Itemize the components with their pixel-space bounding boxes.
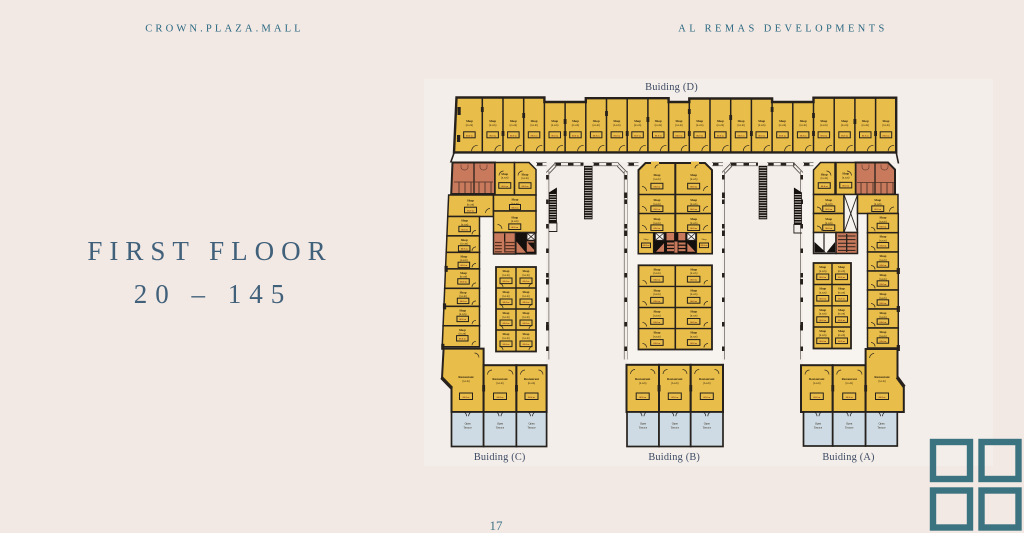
svg-text:(n.s.m): (n.s.m) <box>613 124 620 127</box>
svg-text:00.0 m: 00.0 m <box>690 208 697 211</box>
svg-text:00.0 m: 00.0 m <box>701 244 708 247</box>
svg-text:00.0 m: 00.0 m <box>503 301 510 304</box>
svg-text:Shop: Shop <box>523 311 530 315</box>
svg-text:Shop: Shop <box>690 331 697 335</box>
svg-text:00.0 m: 00.0 m <box>572 134 579 137</box>
svg-text:(n.s.m): (n.s.m) <box>671 382 678 385</box>
svg-text:(n.s.m): (n.s.m) <box>522 337 529 340</box>
svg-text:Open: Open <box>878 423 885 426</box>
svg-text:Shop: Shop <box>653 331 660 335</box>
svg-text:00.0 m: 00.0 m <box>489 134 496 137</box>
svg-text:Shop: Shop <box>717 119 724 123</box>
svg-text:Open: Open <box>528 423 535 426</box>
svg-text:(n.s.m): (n.s.m) <box>799 124 806 127</box>
svg-text:00.0 m: 00.0 m <box>841 134 848 137</box>
svg-text:00.0 m: 00.0 m <box>779 134 786 137</box>
svg-text:Shop: Shop <box>459 328 466 332</box>
svg-text:(n.s.m): (n.s.m) <box>639 382 646 385</box>
svg-text:00.0 m: 00.0 m <box>880 283 887 286</box>
svg-text:(n.s.m): (n.s.m) <box>696 124 703 127</box>
svg-text:Shop: Shop <box>696 119 703 123</box>
svg-text:00.0 m: 00.0 m <box>825 208 832 211</box>
svg-text:00.0 m: 00.0 m <box>696 134 703 137</box>
svg-text:Shop: Shop <box>874 198 881 202</box>
svg-text:CROWN.PLAZA.MALL: CROWN.PLAZA.MALL <box>145 24 303 35</box>
svg-text:00.0 m: 00.0 m <box>862 134 869 137</box>
svg-text:Shop: Shop <box>593 119 600 123</box>
svg-text:Shop: Shop <box>825 217 832 221</box>
svg-text:(n.s.m): (n.s.m) <box>675 124 682 127</box>
svg-text:(n.s.m): (n.s.m) <box>825 203 832 206</box>
svg-text:00.0 m: 00.0 m <box>819 276 826 279</box>
svg-text:(n.s.m): (n.s.m) <box>489 124 496 127</box>
svg-text:(n.s.m): (n.s.m) <box>690 293 697 296</box>
svg-text:Restaurant: Restaurant <box>809 377 825 381</box>
svg-text:(n.s.m): (n.s.m) <box>502 274 509 277</box>
svg-text:Shop: Shop <box>522 172 529 176</box>
svg-text:(n.s.m): (n.s.m) <box>653 314 660 317</box>
svg-text:Shop: Shop <box>690 267 697 271</box>
svg-text:(n.s.m): (n.s.m) <box>703 382 710 385</box>
svg-text:(n.s.m): (n.s.m) <box>551 124 558 127</box>
svg-text:00.0 m: 00.0 m <box>838 319 845 322</box>
svg-text:(n.s.m): (n.s.m) <box>838 334 845 337</box>
svg-text:(n.s.m): (n.s.m) <box>653 203 660 206</box>
svg-text:Shop: Shop <box>800 119 807 123</box>
svg-text:00.0 m: 00.0 m <box>690 300 697 303</box>
svg-text:Shop: Shop <box>572 119 579 123</box>
svg-text:Shop: Shop <box>489 119 496 123</box>
svg-text:(n.s.m): (n.s.m) <box>819 313 826 316</box>
svg-text:Terrace: Terrace <box>877 427 886 430</box>
svg-text:00.0 m: 00.0 m <box>512 206 519 209</box>
svg-text:(n.s.m): (n.s.m) <box>653 272 660 275</box>
svg-text:Shop: Shop <box>738 119 745 123</box>
svg-text:(n.s.m): (n.s.m) <box>690 178 697 181</box>
svg-text:Open: Open <box>815 423 822 426</box>
svg-text:(n.s.m): (n.s.m) <box>819 270 826 273</box>
svg-text:00.0 m: 00.0 m <box>846 396 853 399</box>
svg-text:Shop: Shop <box>461 238 468 242</box>
svg-text:(n.s.m): (n.s.m) <box>511 220 518 223</box>
svg-text:00.0 m: 00.0 m <box>523 280 530 283</box>
svg-text:00.0 m: 00.0 m <box>654 279 661 282</box>
svg-text:00.0 m: 00.0 m <box>551 134 558 137</box>
svg-text:Shop: Shop <box>820 119 827 123</box>
svg-text:Shop: Shop <box>879 254 886 258</box>
svg-text:00.0 m: 00.0 m <box>676 134 683 137</box>
svg-text:Terrace: Terrace <box>463 427 472 430</box>
svg-text:00.0 m: 00.0 m <box>758 134 765 137</box>
svg-text:Shop: Shop <box>779 119 786 123</box>
svg-text:(n.s.m): (n.s.m) <box>462 380 469 383</box>
svg-text:Terrace: Terrace <box>814 427 823 430</box>
svg-text:FIRST FLOOR: FIRST FLOOR <box>87 236 332 266</box>
svg-text:Shop: Shop <box>690 173 697 177</box>
svg-text:Shop: Shop <box>838 329 845 333</box>
svg-text:(n.s.m): (n.s.m) <box>502 295 509 298</box>
svg-text:00.0 m: 00.0 m <box>459 318 466 321</box>
svg-text:(n.s.m): (n.s.m) <box>737 124 744 127</box>
svg-text:Terrace: Terrace <box>639 427 648 430</box>
svg-text:00.0 m: 00.0 m <box>838 276 845 279</box>
svg-text:Shop: Shop <box>466 119 473 123</box>
svg-text:00.0 m: 00.0 m <box>874 208 881 211</box>
svg-text:(n.s.m): (n.s.m) <box>825 222 832 225</box>
svg-text:(n.s.m): (n.s.m) <box>466 124 473 127</box>
svg-text:(n.s.m): (n.s.m) <box>819 291 826 294</box>
svg-text:Shop: Shop <box>819 308 826 312</box>
svg-text:00.0 m: 00.0 m <box>528 396 535 399</box>
svg-text:Shop: Shop <box>862 119 869 123</box>
svg-text:(n.s.m): (n.s.m) <box>882 124 889 127</box>
svg-text:Shop: Shop <box>459 308 466 312</box>
svg-text:(n.s.m): (n.s.m) <box>502 316 509 319</box>
svg-text:(n.s.m): (n.s.m) <box>690 203 697 206</box>
svg-text:(n.s.m): (n.s.m) <box>717 124 724 127</box>
svg-text:00.0 m: 00.0 m <box>821 185 828 188</box>
svg-text:00.0 m: 00.0 m <box>838 298 845 301</box>
svg-text:Restaurant: Restaurant <box>524 377 540 381</box>
svg-text:00.0 m: 00.0 m <box>460 264 467 267</box>
svg-text:(n.s.m): (n.s.m) <box>820 124 827 127</box>
svg-text:Shop: Shop <box>838 265 845 269</box>
svg-text:Shop: Shop <box>634 119 641 123</box>
svg-text:(n.s.m): (n.s.m) <box>874 203 881 206</box>
svg-text:Shop: Shop <box>675 119 682 123</box>
svg-text:(n.s.m): (n.s.m) <box>522 274 529 277</box>
svg-text:(n.s.m): (n.s.m) <box>572 124 579 127</box>
svg-text:(n.s.m): (n.s.m) <box>690 222 697 225</box>
svg-text:00.0 m: 00.0 m <box>838 340 845 343</box>
svg-text:00.0 m: 00.0 m <box>503 343 510 346</box>
svg-text:Restaurant: Restaurant <box>842 377 858 381</box>
svg-text:Shop: Shop <box>879 311 886 315</box>
svg-text:(n.s.m): (n.s.m) <box>501 177 508 180</box>
svg-text:00.0 m: 00.0 m <box>634 134 641 137</box>
svg-text:00.0 m: 00.0 m <box>503 280 510 283</box>
svg-text:(n.s.m): (n.s.m) <box>878 380 885 383</box>
svg-text:Shop: Shop <box>690 310 697 314</box>
svg-text:(n.s.m): (n.s.m) <box>522 295 529 298</box>
svg-text:00.0 m: 00.0 m <box>463 396 470 399</box>
svg-text:00.0 m: 00.0 m <box>654 342 661 345</box>
svg-text:Shop: Shop <box>503 269 510 273</box>
svg-text:Shop: Shop <box>523 269 530 273</box>
svg-text:Shop: Shop <box>702 238 708 241</box>
svg-text:00.0 m: 00.0 m <box>654 208 661 211</box>
svg-text:Restaurant: Restaurant <box>492 377 508 381</box>
svg-text:00.0 m: 00.0 m <box>497 396 504 399</box>
svg-text:(n.s.m): (n.s.m) <box>592 124 599 127</box>
svg-text:Shop: Shop <box>467 198 474 202</box>
svg-text:Open: Open <box>704 423 711 426</box>
svg-text:00.0 m: 00.0 m <box>654 300 661 303</box>
svg-text:(n.s.m): (n.s.m) <box>528 382 535 385</box>
svg-text:Shop: Shop <box>512 198 519 202</box>
svg-text:Terrace: Terrace <box>671 427 680 430</box>
svg-text:Shop: Shop <box>879 330 886 334</box>
svg-text:Shop: Shop <box>819 265 826 269</box>
svg-text:00.0 m: 00.0 m <box>503 322 510 325</box>
svg-text:00.0 m: 00.0 m <box>813 396 820 399</box>
svg-text:00.0 m: 00.0 m <box>654 185 661 188</box>
svg-text:00.0 m: 00.0 m <box>639 396 646 399</box>
svg-text:(n.s.m): (n.s.m) <box>467 203 474 206</box>
svg-text:Open: Open <box>846 423 853 426</box>
svg-text:(n.s.m): (n.s.m) <box>690 335 697 338</box>
svg-text:Open: Open <box>497 423 504 426</box>
svg-text:Shop: Shop <box>501 172 508 176</box>
svg-text:Open: Open <box>465 423 472 426</box>
svg-text:00.0 m: 00.0 m <box>690 227 697 230</box>
svg-text:00.0 m: 00.0 m <box>501 185 508 188</box>
svg-text:00.0 m: 00.0 m <box>819 319 826 322</box>
svg-text:Shop: Shop <box>523 290 530 294</box>
svg-text:Shop: Shop <box>879 235 886 239</box>
svg-text:(n.s.m): (n.s.m) <box>690 314 697 317</box>
svg-text:20 – 145: 20 – 145 <box>134 279 293 309</box>
svg-text:(n.s.m): (n.s.m) <box>634 124 641 127</box>
svg-text:Shop: Shop <box>838 287 845 291</box>
svg-text:(n.s.m): (n.s.m) <box>862 124 869 127</box>
svg-text:00.0 m: 00.0 m <box>825 227 832 230</box>
svg-text:(n.s.m): (n.s.m) <box>510 124 517 127</box>
svg-text:00.0 m: 00.0 m <box>643 244 650 247</box>
svg-text:Shop: Shop <box>460 290 467 294</box>
svg-text:Shop: Shop <box>503 332 510 336</box>
svg-text:00.0 m: 00.0 m <box>880 302 887 305</box>
svg-text:(n.s.m): (n.s.m) <box>813 382 820 385</box>
svg-text:00.0 m: 00.0 m <box>690 185 697 188</box>
svg-text:00.0 m: 00.0 m <box>703 396 710 399</box>
svg-text:Shop: Shop <box>653 173 660 177</box>
svg-text:Restaurant: Restaurant <box>635 377 651 381</box>
svg-text:00.0 m: 00.0 m <box>690 321 697 324</box>
svg-text:(n.s.m): (n.s.m) <box>842 176 849 179</box>
svg-text:(n.s.m): (n.s.m) <box>838 270 845 273</box>
svg-text:00.0 m: 00.0 m <box>819 298 826 301</box>
svg-text:00.0 m: 00.0 m <box>842 185 849 188</box>
svg-text:00.0 m: 00.0 m <box>880 225 887 228</box>
svg-text:(n.s.m): (n.s.m) <box>521 177 528 180</box>
svg-text:00.0 m: 00.0 m <box>880 340 887 343</box>
svg-text:00.0 m: 00.0 m <box>523 301 530 304</box>
svg-text:00.0 m: 00.0 m <box>466 134 473 137</box>
svg-text:(n.s.m): (n.s.m) <box>838 313 845 316</box>
svg-text:Buiding (A): Buiding (A) <box>822 452 874 463</box>
svg-text:Shop: Shop <box>653 198 660 202</box>
svg-text:(n.s.m): (n.s.m) <box>653 335 660 338</box>
svg-text:(n.s.m): (n.s.m) <box>838 291 845 294</box>
svg-text:Shop: Shop <box>511 215 518 219</box>
svg-text:00.0 m: 00.0 m <box>820 134 827 137</box>
svg-text:00.0 m: 00.0 m <box>738 134 745 137</box>
svg-text:Shop: Shop <box>838 308 845 312</box>
svg-text:(n.s.m): (n.s.m) <box>779 124 786 127</box>
svg-text:00.0 m: 00.0 m <box>522 185 529 188</box>
svg-text:(n.s.m): (n.s.m) <box>821 177 828 180</box>
svg-text:00.0 m: 00.0 m <box>654 227 661 230</box>
svg-text:Shop: Shop <box>690 217 697 221</box>
svg-text:(n.s.m): (n.s.m) <box>653 222 660 225</box>
svg-text:(n.s.m): (n.s.m) <box>496 382 503 385</box>
svg-text:(n.s.m): (n.s.m) <box>819 334 826 337</box>
svg-text:00.0 m: 00.0 m <box>523 343 530 346</box>
svg-text:(n.s.m): (n.s.m) <box>653 293 660 296</box>
svg-text:Shop: Shop <box>758 119 765 123</box>
svg-text:(n.s.m): (n.s.m) <box>846 382 853 385</box>
svg-text:Shop: Shop <box>613 119 620 123</box>
svg-text:Shop: Shop <box>879 273 886 277</box>
svg-text:(n.s.m): (n.s.m) <box>653 178 660 181</box>
svg-text:(n.s.m): (n.s.m) <box>502 337 509 340</box>
svg-text:00.0 m: 00.0 m <box>690 342 697 345</box>
svg-text:Buiding (C): Buiding (C) <box>474 452 526 463</box>
svg-text:00.0 m: 00.0 m <box>654 321 661 324</box>
svg-text:00.0 m: 00.0 m <box>593 134 600 137</box>
svg-text:Terrace: Terrace <box>845 427 854 430</box>
svg-text:Shop: Shop <box>653 267 660 271</box>
svg-text:00.0 m: 00.0 m <box>461 228 468 231</box>
svg-text:Shop: Shop <box>460 254 467 258</box>
svg-text:Shop: Shop <box>882 119 889 123</box>
svg-text:Terrace: Terrace <box>496 427 505 430</box>
svg-text:(n.s.m): (n.s.m) <box>655 124 662 127</box>
svg-text:(n.s.m): (n.s.m) <box>758 124 765 127</box>
svg-text:Shop: Shop <box>825 198 832 202</box>
svg-text:Restaurant: Restaurant <box>458 375 474 379</box>
svg-text:00.0 m: 00.0 m <box>460 300 467 303</box>
svg-text:Buiding (D): Buiding (D) <box>645 82 698 93</box>
svg-text:Shop: Shop <box>821 172 828 176</box>
svg-text:00.0 m: 00.0 m <box>511 226 518 229</box>
svg-text:(n.s.m): (n.s.m) <box>841 124 848 127</box>
svg-text:Shop: Shop <box>653 217 660 221</box>
svg-text:00.0 m: 00.0 m <box>510 134 517 137</box>
svg-text:00.0 m: 00.0 m <box>819 340 826 343</box>
svg-text:Shop: Shop <box>531 119 538 123</box>
svg-text:Shop: Shop <box>460 271 467 275</box>
svg-text:(n.s.m): (n.s.m) <box>530 124 537 127</box>
svg-text:Shop: Shop <box>690 288 697 292</box>
svg-text:00.0 m: 00.0 m <box>467 209 474 212</box>
svg-text:00.0 m: 00.0 m <box>880 264 887 267</box>
svg-text:Open: Open <box>672 423 679 426</box>
svg-text:00.0 m: 00.0 m <box>883 134 890 137</box>
svg-text:(n.s.m): (n.s.m) <box>522 316 529 319</box>
svg-text:00.0 m: 00.0 m <box>460 281 467 284</box>
svg-text:Shop: Shop <box>841 119 848 123</box>
svg-text:00.0 m: 00.0 m <box>671 396 678 399</box>
svg-text:Terrace: Terrace <box>527 427 536 430</box>
svg-text:AL REMAS DEVELOPMENTS: AL REMAS DEVELOPMENTS <box>678 24 887 35</box>
svg-text:Shop: Shop <box>551 119 558 123</box>
svg-text:00.0 m: 00.0 m <box>800 134 807 137</box>
svg-text:Shop: Shop <box>690 198 697 202</box>
svg-text:Shop: Shop <box>879 292 886 296</box>
svg-text:(n.s.m): (n.s.m) <box>690 272 697 275</box>
svg-text:Shop: Shop <box>523 332 530 336</box>
svg-text:Shop: Shop <box>653 288 660 292</box>
svg-text:00.0 m: 00.0 m <box>459 338 466 341</box>
svg-text:00.0 m: 00.0 m <box>879 396 886 399</box>
svg-text:Open: Open <box>640 423 647 426</box>
svg-text:17: 17 <box>490 518 504 533</box>
svg-text:Shop: Shop <box>510 119 517 123</box>
svg-text:00.0 m: 00.0 m <box>523 322 530 325</box>
svg-text:00.0 m: 00.0 m <box>531 134 538 137</box>
svg-text:Restaurant: Restaurant <box>699 377 715 381</box>
svg-text:Shop: Shop <box>503 311 510 315</box>
svg-text:00.0 m: 00.0 m <box>880 321 887 324</box>
svg-text:Restaurant: Restaurant <box>667 377 683 381</box>
svg-text:Terrace: Terrace <box>703 427 712 430</box>
svg-text:Shop: Shop <box>819 329 826 333</box>
svg-text:Shop: Shop <box>653 310 660 314</box>
svg-text:Shop: Shop <box>503 290 510 294</box>
svg-text:00.0 m: 00.0 m <box>690 279 697 282</box>
svg-text:00.0 m: 00.0 m <box>717 134 724 137</box>
svg-text:00.0 m: 00.0 m <box>880 245 887 248</box>
svg-text:Shop: Shop <box>819 287 826 291</box>
svg-text:00.0 m: 00.0 m <box>655 134 662 137</box>
svg-text:Shop: Shop <box>655 119 662 123</box>
svg-text:Shop: Shop <box>461 219 468 223</box>
svg-text:Restaurant: Restaurant <box>874 375 890 379</box>
svg-text:00.0 m: 00.0 m <box>461 248 468 251</box>
svg-text:Shop: Shop <box>879 216 886 220</box>
svg-text:Shop: Shop <box>842 172 849 176</box>
svg-text:00.0 m: 00.0 m <box>613 134 620 137</box>
svg-text:Buiding (B): Buiding (B) <box>648 452 700 463</box>
svg-text:Shop: Shop <box>644 238 650 241</box>
